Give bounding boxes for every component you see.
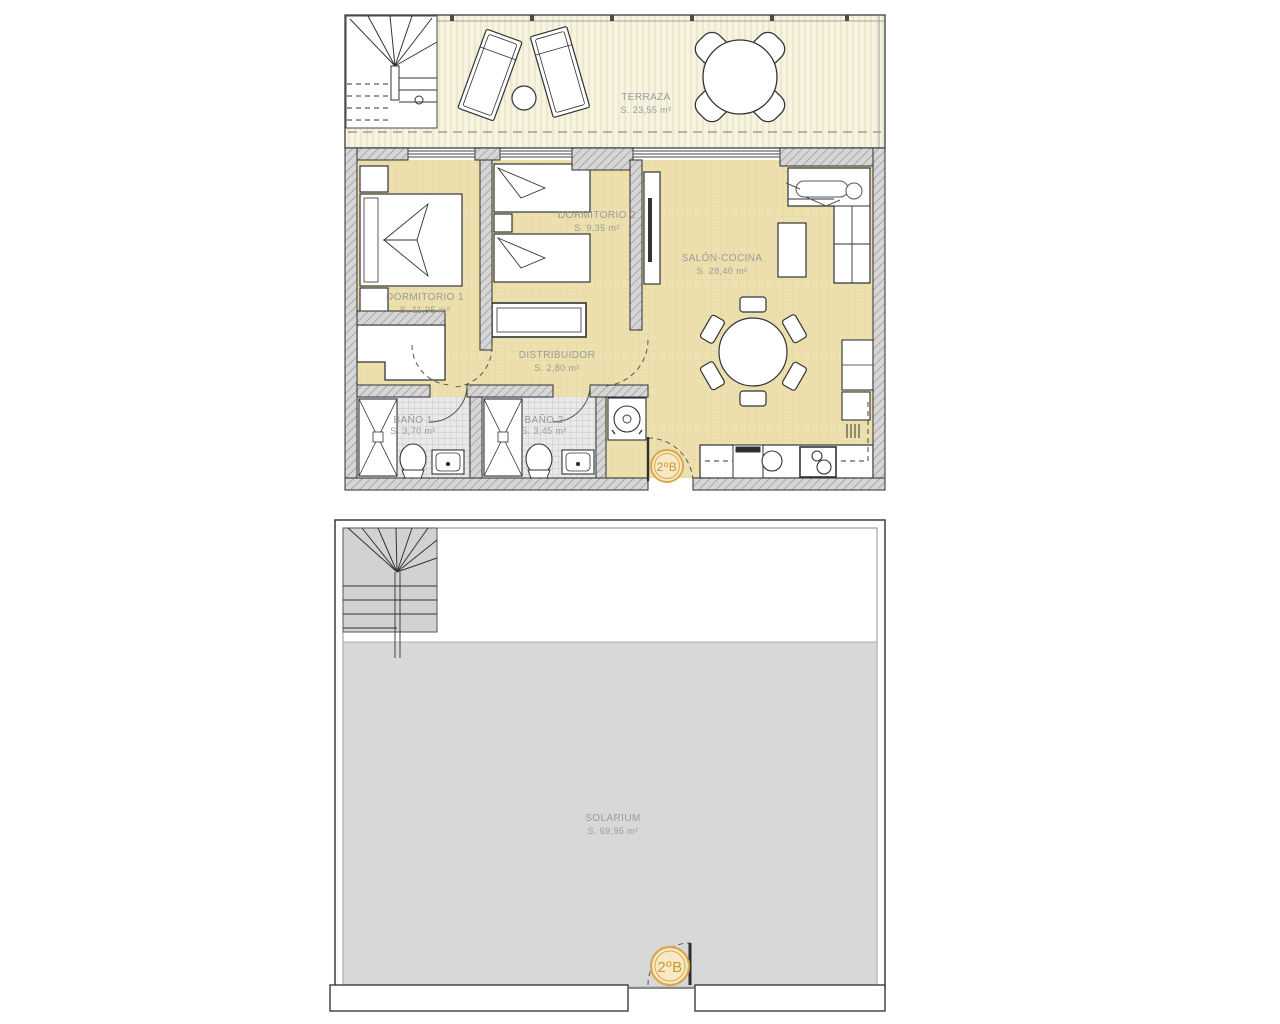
lower-plan: SOLARIUM S. 69,95 m² 2ºB <box>330 520 885 1011</box>
room-name: BAÑO 2 <box>524 413 563 426</box>
unit-badge-upper: 2ºB <box>651 450 683 482</box>
unit-badge-label: 2ºB <box>657 460 678 474</box>
unit-badge-lower: 2ºB <box>651 947 689 985</box>
room-name: SOLARIUM <box>585 813 640 824</box>
terrace: TERRAZA S. 23,55 m² <box>345 15 885 148</box>
room-name: BAÑO 1 <box>393 413 432 426</box>
side-table-icon <box>512 86 536 110</box>
floor-plan-drawing: TERRAZA S. 23,55 m² <box>0 0 1280 1024</box>
solarium-parapet <box>330 985 885 1011</box>
terrace-table-icon <box>691 28 789 126</box>
room-name: TERRAZA <box>621 92 670 103</box>
wardrobe-icon <box>492 303 586 337</box>
room-label-bano-1: BAÑO 1 S. 3,70 m² <box>390 413 436 436</box>
tv-unit-icon <box>644 172 660 284</box>
floor-plan-page: TERRAZA S. 23,55 m² <box>0 0 1280 1024</box>
room-area: S. 3,45 m² <box>521 426 567 436</box>
toilet-icon <box>526 444 552 474</box>
room-name: DORMITORIO 2 <box>558 210 636 221</box>
room-area: S. 23,55 m² <box>621 105 672 115</box>
room-area: S. 69,95 m² <box>588 826 639 836</box>
unit-badge-label: 2ºB <box>657 959 682 976</box>
room-label-bano-2: BAÑO 2 S. 3,45 m² <box>521 413 567 436</box>
upper-plan: TERRAZA S. 23,55 m² <box>345 15 885 490</box>
coffee-table-icon <box>778 223 806 277</box>
room-name: DORMITORIO 1 <box>386 292 464 303</box>
room-name: SALÓN-COCINA <box>682 251 763 264</box>
staircase-upper-icon <box>346 16 437 128</box>
washing-machine-icon <box>608 398 646 440</box>
room-name: DISTRIBUIDOR <box>519 350 595 361</box>
room-area: S. 2,80 m² <box>534 363 580 373</box>
room-area: S. 3,70 m² <box>390 426 436 436</box>
toilet-icon <box>400 444 426 474</box>
room-area: S. 11,95 m² <box>400 305 450 315</box>
room-area: S. 28,40 m² <box>697 266 748 276</box>
room-area: S. 9,35 m² <box>574 223 620 233</box>
